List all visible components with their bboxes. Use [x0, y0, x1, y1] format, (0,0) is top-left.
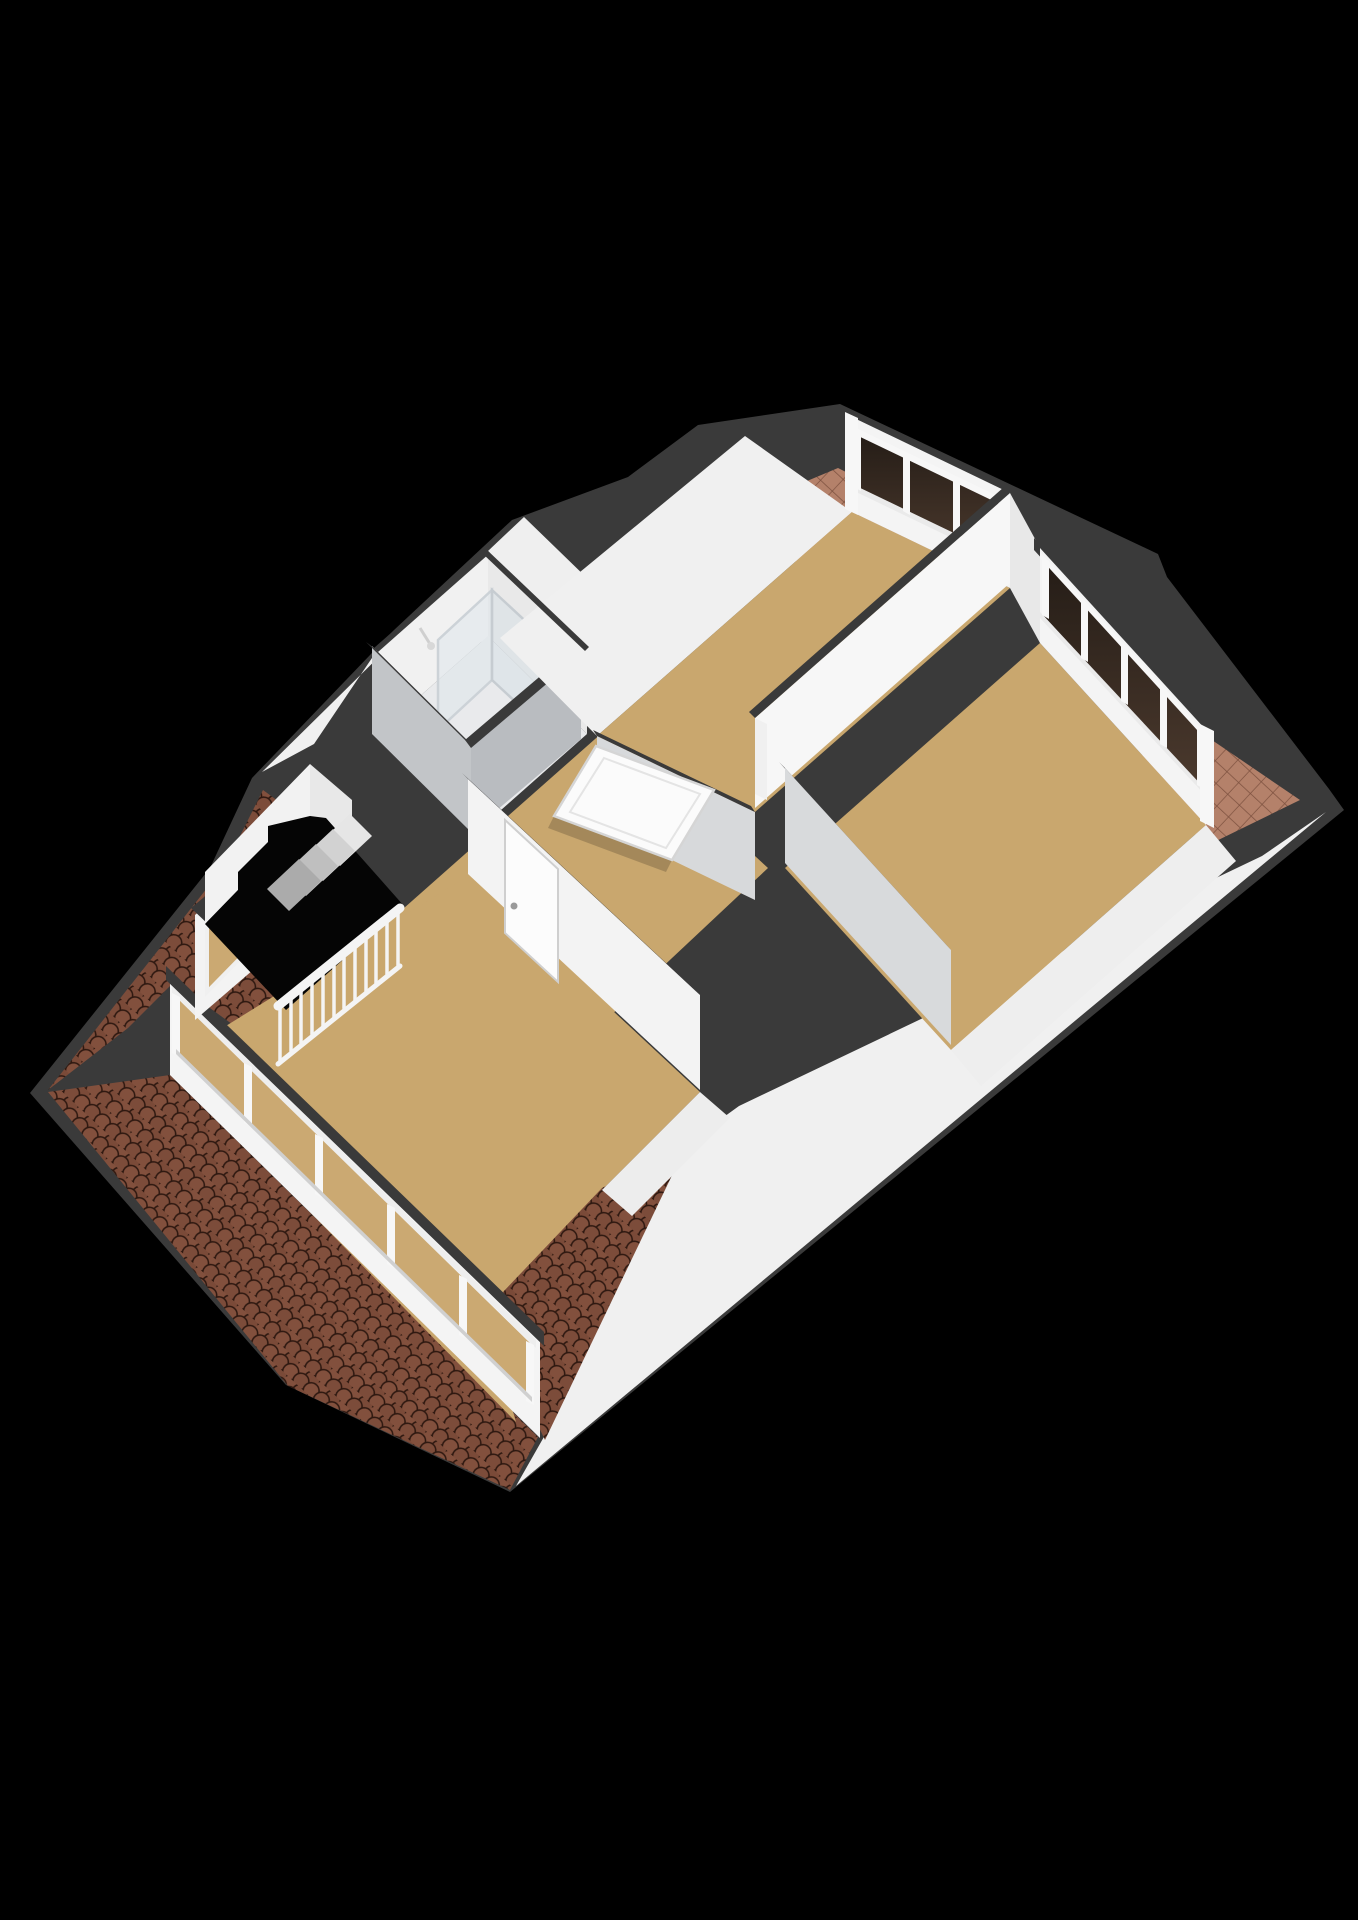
window-corner-post-right — [1200, 724, 1214, 828]
window-corner-post-left — [845, 412, 858, 515]
floorplan-3d-render — [0, 0, 1358, 1920]
floorplan-3d-viewport[interactable] — [0, 0, 1358, 1920]
hall-door-jamb — [755, 718, 767, 800]
door-handle — [511, 903, 518, 910]
shower-head — [427, 642, 435, 650]
